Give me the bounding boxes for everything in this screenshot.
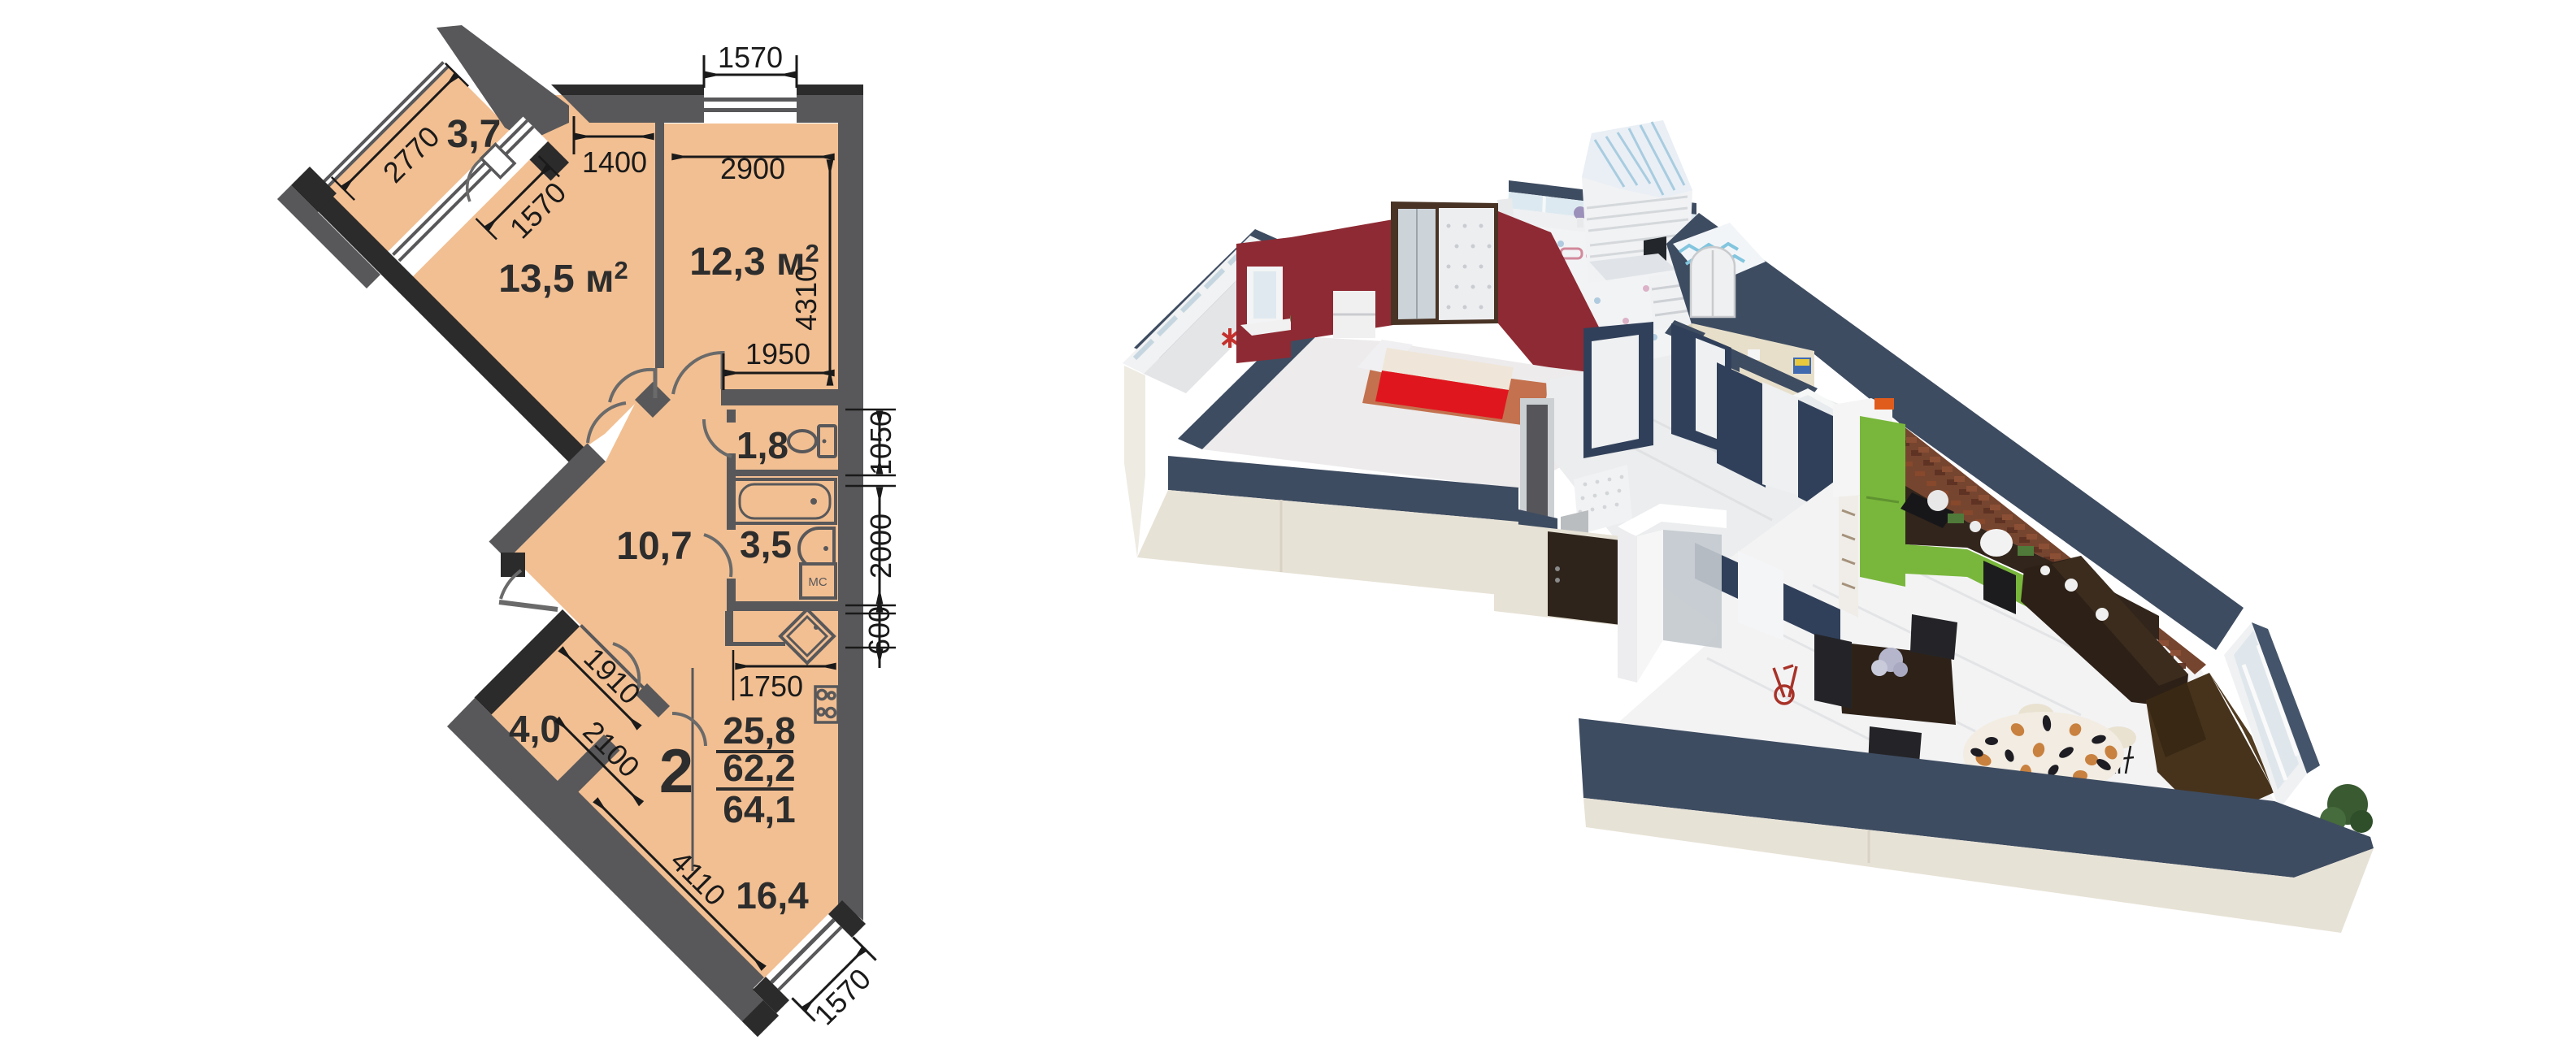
svg-text:25,8: 25,8 bbox=[723, 709, 796, 752]
svg-text:2900: 2900 bbox=[720, 152, 785, 185]
svg-text:1950: 1950 bbox=[745, 337, 810, 371]
svg-text:16,4: 16,4 bbox=[736, 874, 809, 917]
svg-text:1750: 1750 bbox=[738, 670, 803, 703]
svg-text:64,1: 64,1 bbox=[723, 788, 796, 830]
svg-text:1050: 1050 bbox=[864, 410, 897, 475]
svg-text:1,8: 1,8 bbox=[736, 424, 788, 466]
svg-text:1400: 1400 bbox=[582, 145, 647, 179]
svg-text:МС: МС bbox=[808, 575, 827, 589]
svg-text:2000: 2000 bbox=[864, 514, 897, 579]
svg-text:13,5 м2: 13,5 м2 bbox=[498, 256, 628, 301]
svg-text:2: 2 bbox=[659, 737, 693, 806]
svg-text:10,7: 10,7 bbox=[616, 525, 692, 568]
svg-text:600: 600 bbox=[862, 606, 896, 655]
svg-text:3,5: 3,5 bbox=[740, 523, 792, 566]
svg-text:3,7: 3,7 bbox=[447, 113, 502, 156]
svg-text:1570: 1570 bbox=[807, 962, 877, 1032]
svg-text:4,0: 4,0 bbox=[509, 708, 561, 750]
svg-text:1570: 1570 bbox=[718, 41, 783, 74]
svg-text:4310: 4310 bbox=[789, 266, 823, 331]
